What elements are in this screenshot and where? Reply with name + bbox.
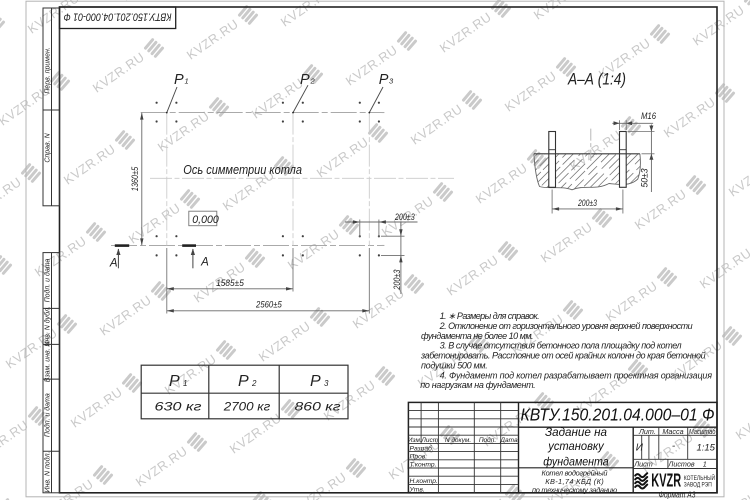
svg-text:N докум.: N докум. [445, 436, 471, 444]
svg-text:200±3: 200±3 [577, 198, 597, 209]
svg-text:подушки 500 мм.: подушки 500 мм. [421, 360, 488, 370]
svg-text:Масса: Масса [662, 427, 683, 436]
svg-text:Задание на: Задание на [545, 425, 607, 439]
svg-text:Справ. N: Справ. N [45, 132, 52, 162]
svg-text:КВТУ.150.201.04.000-01 Ф: КВТУ.150.201.04.000-01 Ф [63, 10, 171, 22]
svg-text:А–А (1:4): А–А (1:4) [567, 70, 626, 88]
svg-text:1: 1 [183, 379, 187, 388]
svg-text:Дата: Дата [499, 437, 518, 444]
svg-text:Р: Р [300, 72, 310, 88]
svg-text:1:15: 1:15 [696, 442, 715, 453]
svg-text:фундамента: фундамента [543, 454, 609, 468]
svg-text:фундамента не более 10 мм.: фундамента не более 10 мм. [421, 331, 534, 341]
svg-text:1: 1 [703, 460, 707, 469]
svg-text:Ось симметрии котла: Ось симметрии котла [183, 162, 302, 177]
svg-text:2: 2 [310, 76, 316, 85]
svg-text:3: 3 [324, 379, 329, 388]
svg-text:4. Фундамент под котел разраба: 4. Фундамент под котел разрабатывает про… [440, 370, 713, 380]
svg-text:2560±5: 2560±5 [255, 300, 282, 311]
svg-text:Р: Р [174, 72, 184, 88]
svg-text:630 кг: 630 кг [155, 400, 202, 414]
svg-text:Лист: Лист [633, 460, 653, 469]
svg-text:Лист: Лист [420, 437, 438, 444]
svg-text:Подп.: Подп. [479, 436, 496, 444]
svg-text:2700 кг: 2700 кг [223, 400, 271, 414]
svg-text:ЗАВОД РЭП: ЗАВОД РЭП [684, 481, 712, 488]
svg-text:Инв. N подл.: Инв. N подл. [44, 451, 52, 492]
svg-text:Подп. и дата: Подп. и дата [44, 258, 52, 302]
svg-text:Пров.: Пров. [410, 454, 428, 461]
svg-text:0,000: 0,000 [192, 214, 219, 226]
svg-text:установку: установку [547, 439, 604, 453]
svg-text:Р: Р [310, 373, 321, 390]
svg-text:Р: Р [238, 373, 249, 390]
svg-text:860 кг: 860 кг [295, 400, 341, 414]
svg-text:Взам. инв. N: Взам. инв. N [45, 340, 52, 382]
svg-text:Масштаб: Масштаб [689, 427, 716, 436]
svg-text:Изм.: Изм. [408, 437, 422, 444]
svg-text:Р: Р [169, 373, 180, 390]
svg-text:по техническому заданию: по техническому заданию [532, 485, 617, 494]
svg-text:50±3: 50±3 [639, 168, 650, 188]
svg-text:по нагрузкам на фундамент.: по нагрузкам на фундамент. [420, 380, 535, 390]
svg-text:Р: Р [379, 72, 389, 88]
svg-text:Инв. N дубл.: Инв. N дубл. [44, 306, 52, 347]
svg-text:2: 2 [251, 379, 257, 388]
svg-text:Подп. и дата: Подп. и дата [44, 393, 52, 437]
svg-text:Н.контр.: Н.контр. [410, 478, 438, 485]
svg-text:забетонировать. Расстояние от: забетонировать. Расстояние от осей крайн… [420, 351, 706, 361]
svg-text:200±3: 200±3 [392, 269, 403, 290]
svg-text:КВТУ.150.201.04.000–01 Ф: КВТУ.150.201.04.000–01 Ф [521, 405, 715, 425]
svg-text:Перв. примен.: Перв. примен. [45, 47, 52, 94]
svg-text:1585±5: 1585±5 [216, 278, 244, 289]
svg-text:Формат А3: Формат А3 [659, 491, 697, 500]
svg-text:Разраб.: Разраб. [410, 444, 434, 452]
svg-text:Листов: Листов [667, 460, 694, 469]
svg-text:1360±5: 1360±5 [130, 166, 141, 191]
svg-text:Лит.: Лит. [638, 427, 656, 436]
svg-text:А: А [109, 257, 118, 269]
svg-text:И: И [636, 443, 644, 454]
svg-text:KVZR: KVZR [651, 471, 681, 491]
svg-text:Утв.: Утв. [409, 486, 425, 493]
svg-text:1: 1 [185, 76, 189, 85]
svg-text:200±3: 200±3 [394, 212, 415, 223]
svg-text:М16: М16 [641, 111, 657, 122]
svg-text:3. В случае отсутствия бетонно: 3. В случае отсутствия бетонного пола пл… [440, 341, 682, 351]
svg-text:2. Отклонение от горизонтально: 2. Отклонение от горизонтального уровня … [439, 321, 693, 331]
svg-text:Т.контр.: Т.контр. [410, 462, 437, 469]
svg-text:А: А [200, 256, 209, 268]
svg-text:1. ∗ Размеры для справок.: 1. ∗ Размеры для справок. [440, 311, 540, 321]
